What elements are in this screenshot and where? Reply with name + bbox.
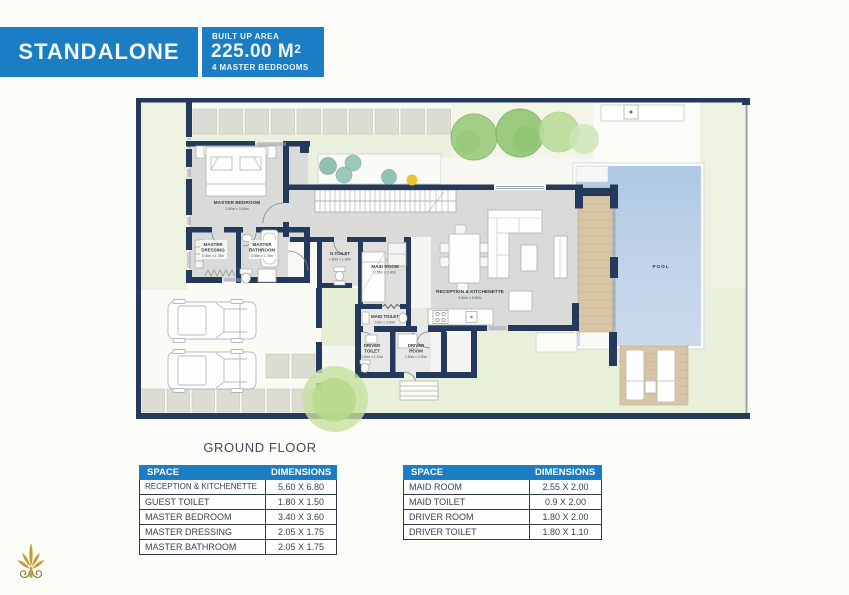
svg-text:ROOM: ROOM bbox=[409, 349, 423, 354]
svg-text:BATHROOM: BATHROOM bbox=[249, 248, 275, 253]
svg-text:DRIVER: DRIVER bbox=[408, 343, 425, 348]
svg-text:0.9m x 2.00m: 0.9m x 2.00m bbox=[375, 321, 396, 325]
svg-text:2.05m x 1.75m: 2.05m x 1.75m bbox=[202, 254, 225, 258]
svg-text:1.80m x 1.50m: 1.80m x 1.50m bbox=[329, 258, 352, 262]
svg-text:POOL: POOL bbox=[652, 264, 669, 269]
svg-text:MASTER BEDROOM: MASTER BEDROOM bbox=[214, 200, 261, 206]
svg-text:G.TOILET: G.TOILET bbox=[330, 251, 350, 256]
svg-text:2.55m x 2.00m: 2.55m x 2.00m bbox=[374, 271, 397, 275]
svg-text:3.40m x 3.60m: 3.40m x 3.60m bbox=[225, 207, 248, 211]
svg-text:1.80m x 2.00m: 1.80m x 2.00m bbox=[405, 355, 428, 359]
svg-text:MASTER: MASTER bbox=[253, 242, 273, 247]
svg-text:MAID TOILET: MAID TOILET bbox=[371, 314, 399, 319]
svg-text:5.60m x 6.80m: 5.60m x 6.80m bbox=[458, 296, 481, 300]
svg-text:0.90m x 1.10m: 0.90m x 1.10m bbox=[361, 355, 384, 359]
svg-text:DRIVER: DRIVER bbox=[364, 343, 381, 348]
svg-text:TOILET: TOILET bbox=[364, 349, 380, 354]
svg-text:RECEPTION & KITCHENETTE: RECEPTION & KITCHENETTE bbox=[436, 289, 504, 295]
svg-text:DRESSING: DRESSING bbox=[201, 248, 225, 253]
svg-text:MAID ROOM: MAID ROOM bbox=[371, 264, 398, 269]
svg-text:MASTER: MASTER bbox=[204, 242, 224, 247]
svg-text:2.05m x 1.75m: 2.05m x 1.75m bbox=[251, 254, 274, 258]
